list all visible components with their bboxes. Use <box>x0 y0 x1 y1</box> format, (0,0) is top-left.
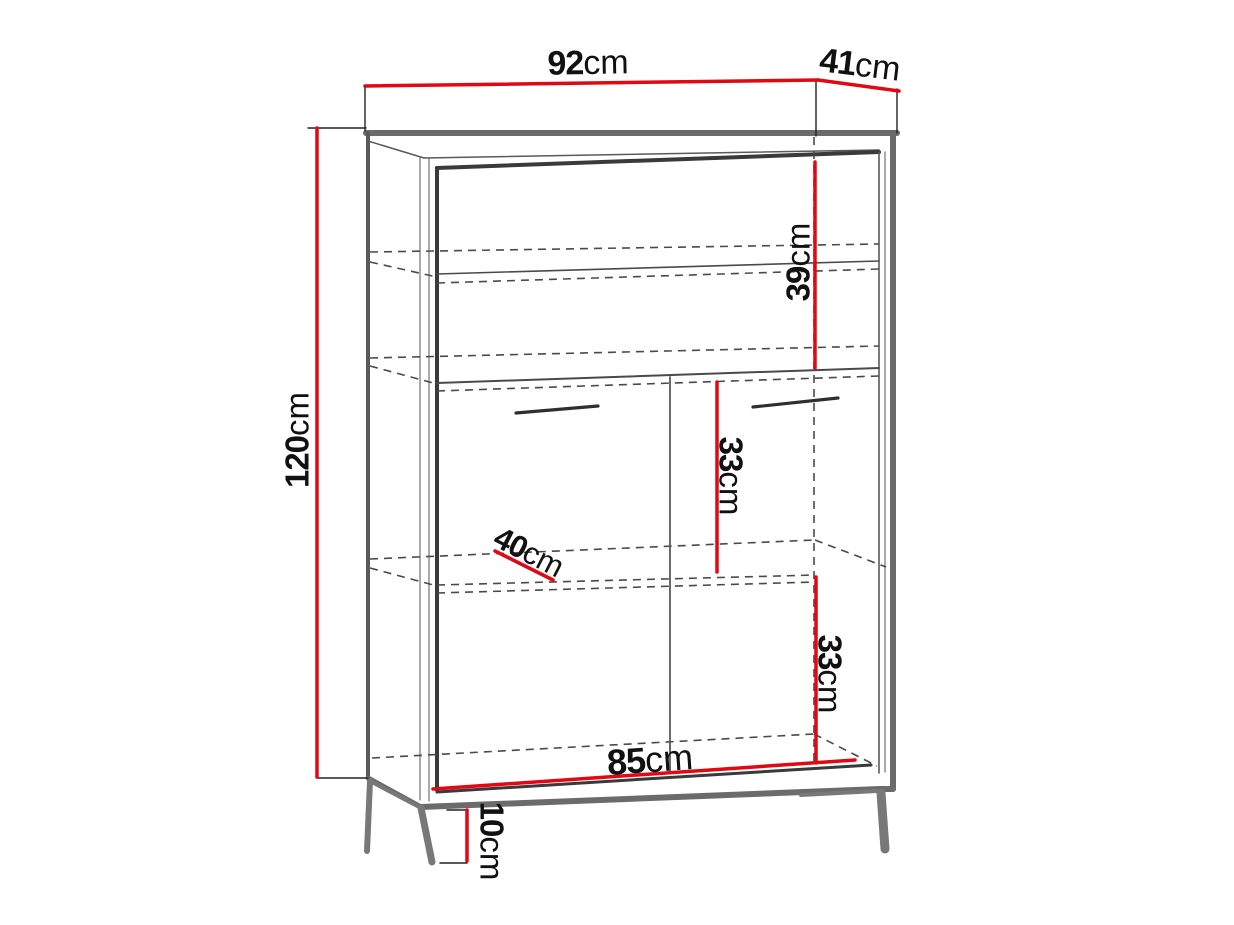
dim-unit: cm <box>812 669 849 713</box>
dim-label-upper-section: 39cm <box>782 223 815 302</box>
dim-value: 33 <box>713 437 750 472</box>
dim-value: 39 <box>780 267 817 302</box>
right-front-leg <box>881 793 885 849</box>
dim-unit: cm <box>780 223 817 267</box>
right-door-handle <box>753 398 838 407</box>
dimension-diagram: 92cm 41cm 120cm 39cm 33cm 33cm 40cm 85cm… <box>0 0 1234 925</box>
dim-value: 120 <box>279 436 316 488</box>
dim-value: 10 <box>474 802 511 837</box>
doors <box>516 377 838 772</box>
dim-label-width: 92cm <box>547 45 629 80</box>
dim-unit: cm <box>713 471 750 515</box>
dim-unit: cm <box>853 46 903 89</box>
dim-label-depth: 41cm <box>818 43 903 87</box>
dim-unit: cm <box>279 392 316 436</box>
dim-label-height: 120cm <box>281 392 314 488</box>
dim-unit: cm <box>583 43 629 82</box>
legs <box>367 781 885 862</box>
dim-value: 92 <box>547 44 583 83</box>
dim-label-interior-width: 85cm <box>606 739 694 781</box>
dim-unit: cm <box>474 836 511 880</box>
left-front-leg <box>421 808 432 862</box>
left-leg-rail <box>370 781 423 809</box>
dim-label-lower-section: 33cm <box>814 635 847 714</box>
cabinet-line-drawing <box>0 0 1234 925</box>
dim-value: 33 <box>812 635 849 670</box>
dim-label-leg-height: 10cm <box>476 802 509 881</box>
dim-value: 41 <box>817 41 857 83</box>
dim-label-middle-section: 33cm <box>715 437 748 516</box>
left-door-handle <box>516 406 598 413</box>
dim-unit: cm <box>644 736 695 780</box>
dim-value: 85 <box>606 739 647 783</box>
left-back-leg <box>367 781 370 851</box>
